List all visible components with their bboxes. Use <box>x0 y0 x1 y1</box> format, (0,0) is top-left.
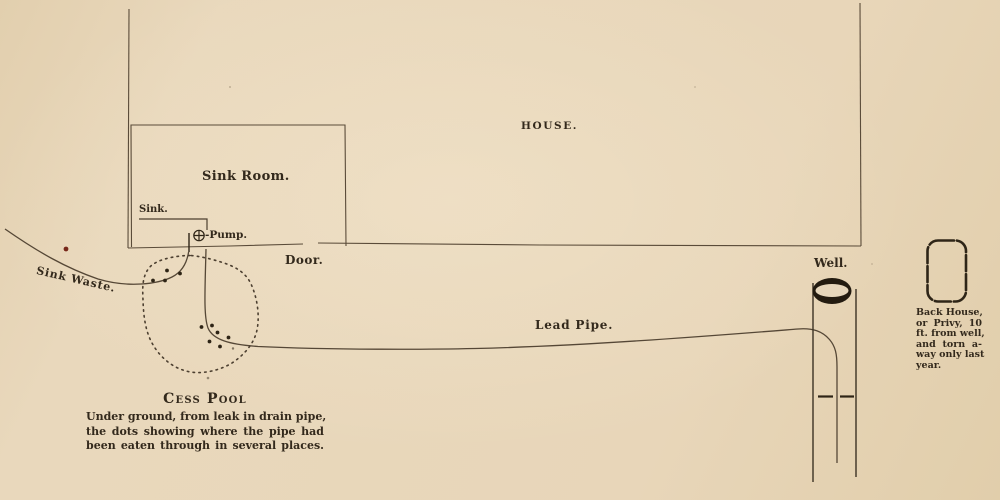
sink-label: Sink. <box>139 204 168 215</box>
privy-caption: Back House, or Privy, 10 ft. from well, … <box>916 308 982 371</box>
sink-outline <box>139 219 207 230</box>
cesspool-dotted-outline <box>143 256 258 373</box>
cesspool-note-line: the dots showing where the pipe had <box>86 425 324 440</box>
lead-pipe-label: Lead Pipe. <box>535 318 613 332</box>
cesspool-title: Cess Pool <box>86 391 324 407</box>
privy-caption-line: way only last <box>916 350 982 361</box>
pump-icon <box>194 230 204 240</box>
well-mouth-ellipse <box>813 278 852 304</box>
privy-caption-line: Back House, <box>916 308 982 319</box>
house-bottom-left <box>128 244 303 248</box>
sink-room-label: Sink Room. <box>202 169 290 184</box>
diagram-page: HOUSE. Sink Room. Sink. -Pump. Door. Sin… <box>0 0 1000 500</box>
well-shaft-walls <box>813 283 856 482</box>
privy-caption-line: year. <box>916 361 982 372</box>
privy-caption-line: ft. from well, <box>916 329 982 340</box>
cesspool-note-line: been eaten through in several places. <box>86 439 324 454</box>
pump-label: -Pump. <box>205 229 247 241</box>
house-bottom-right <box>318 243 861 246</box>
cesspool-caption: Cess Pool Under ground, from leak in dra… <box>86 391 324 454</box>
sink-waste-line <box>5 229 189 284</box>
house-label: HOUSE. <box>521 120 578 132</box>
paper-specks <box>229 86 873 265</box>
well-label: Well. <box>814 256 847 270</box>
house-left-wall <box>128 9 129 248</box>
door-label: Door. <box>285 253 323 267</box>
ink-spot <box>64 247 69 252</box>
privy-box-outline <box>928 241 967 302</box>
pipe-hole-dots <box>151 269 234 380</box>
cesspool-note-line: Under ground, from leak in drain pipe, <box>86 410 324 425</box>
house-right-wall <box>860 3 861 246</box>
